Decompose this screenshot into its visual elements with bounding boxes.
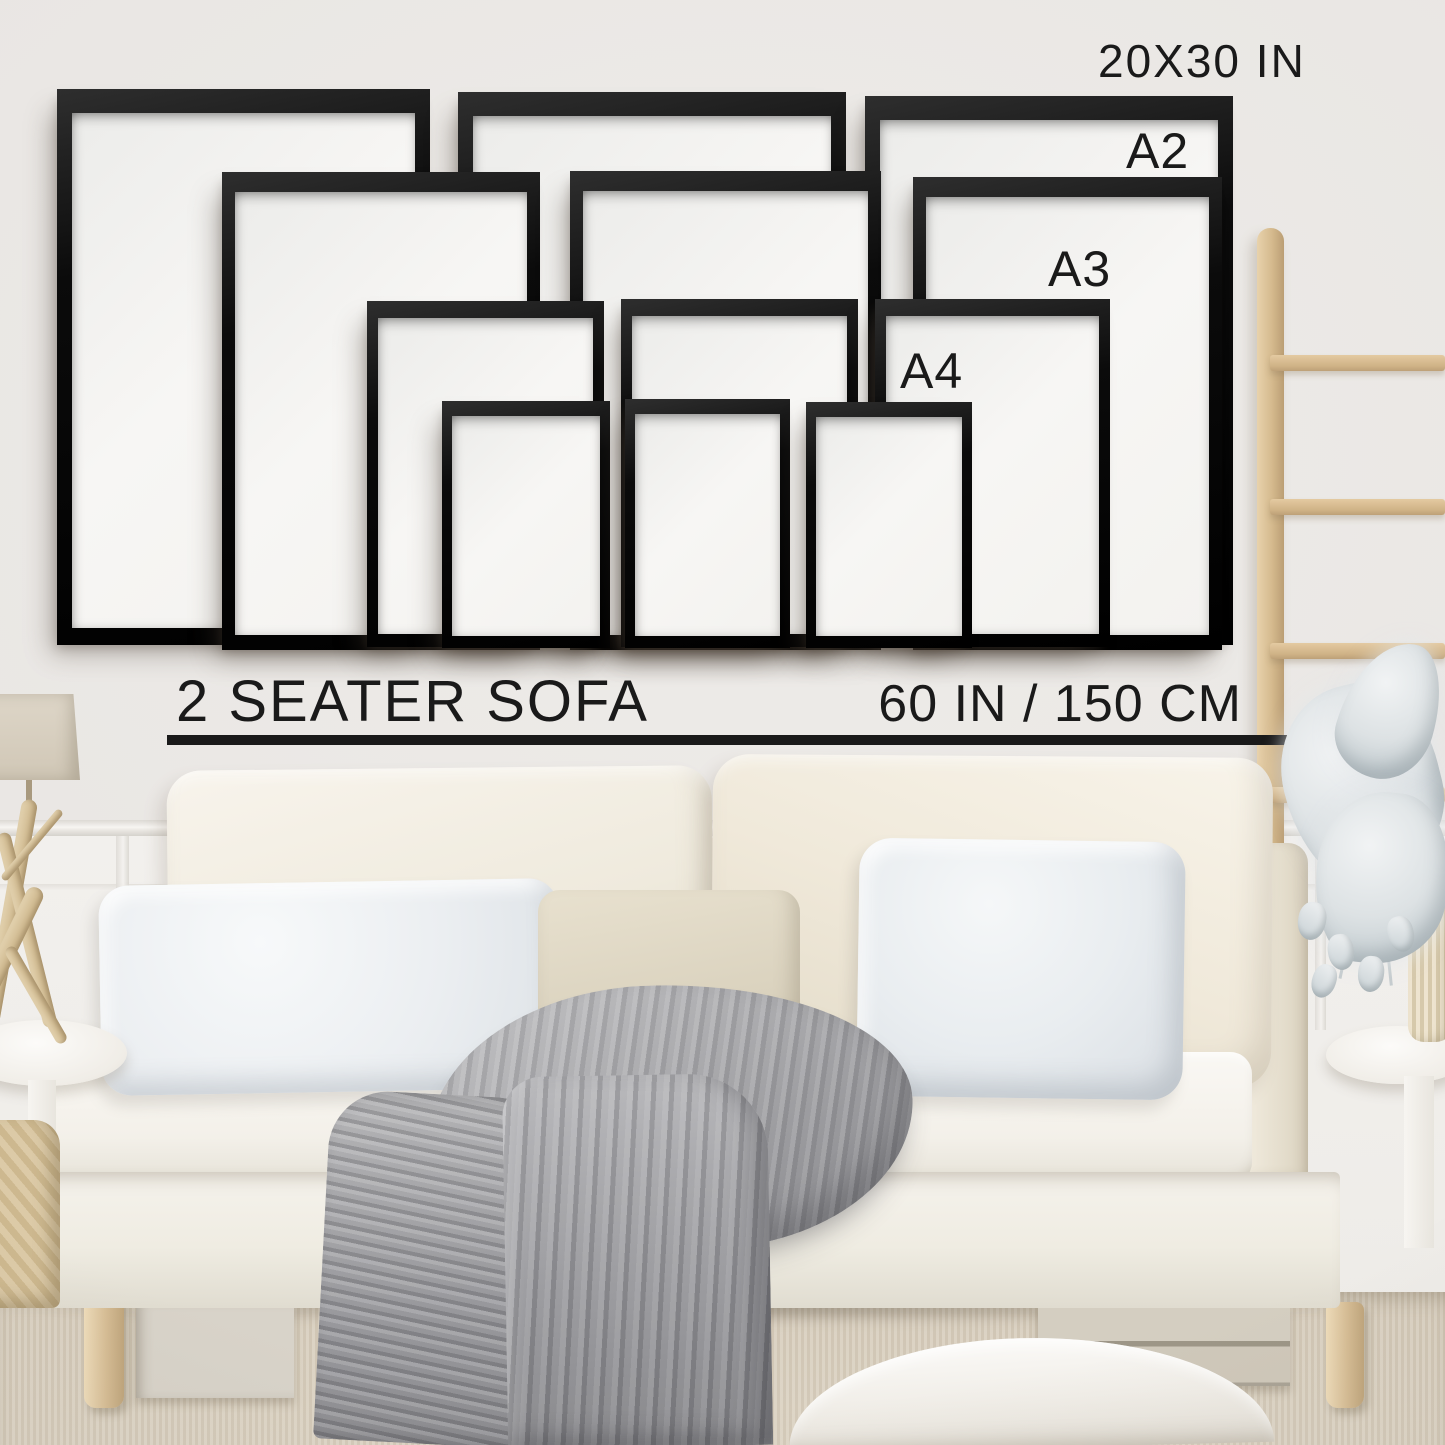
label-sofa-width: 60 IN / 150 CM [878,674,1242,734]
label-size-a4: A4 [900,342,963,400]
table-lamp-shade [0,694,80,780]
sofa-width-underline [167,735,1293,745]
sofa-leg-left [84,1298,124,1408]
sofa-leg-right [1326,1302,1364,1408]
storage-box-under-sofa-left [136,1304,294,1398]
side-table-right-pedestal [1404,1076,1434,1248]
throw-pillow-right [856,838,1186,1101]
label-sofa-type: 2 SEATER SOFA [176,668,649,735]
label-size-a2: A2 [1126,122,1189,180]
knit-throw-drape-front [502,1073,773,1445]
label-size-20x30: 20X30 IN [1098,34,1306,88]
woven-basket [0,1120,60,1308]
label-size-a3: A3 [1048,240,1111,298]
size-guide-scene: 20X30 INA2A3A42 SEATER SOFA60 IN / 150 C… [0,0,1445,1445]
